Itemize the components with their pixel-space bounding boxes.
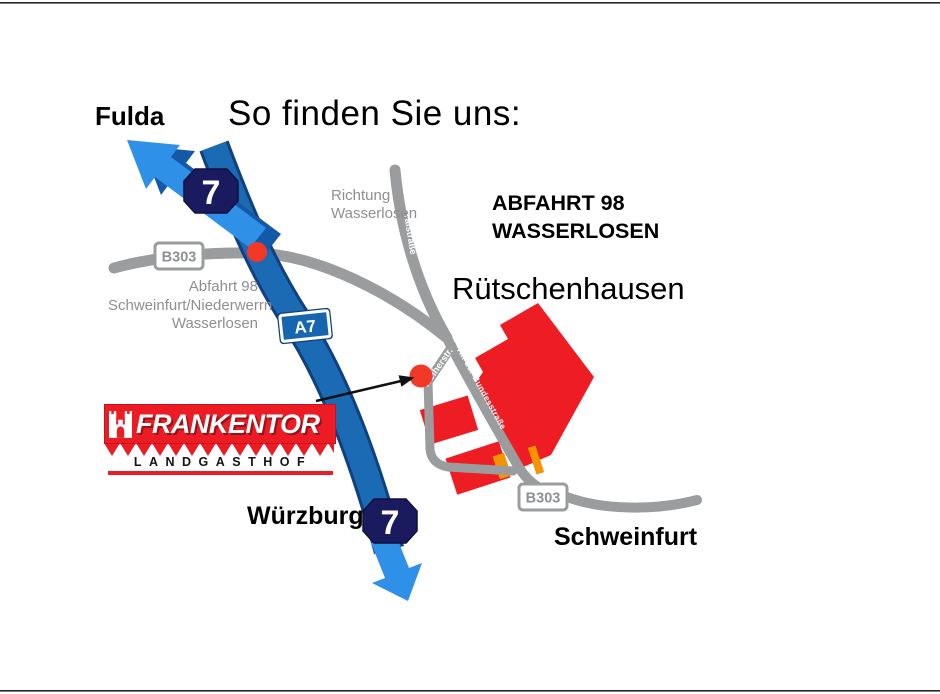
note-richtung-wasserlosen: Richtung Wasserlosen: [331, 187, 417, 223]
autobahn-shield-south-number: 7: [381, 504, 400, 542]
b303-sign-east: B303: [519, 484, 567, 510]
location-marker-dot: [410, 365, 433, 388]
label-fulda: Fulda: [95, 101, 164, 132]
b303-sign-east-label: B303: [526, 491, 561, 507]
note-richtung-line1: Richtung: [331, 187, 417, 205]
frame-line-bottom: [0, 690, 940, 692]
label-schweinfurt: Schweinfurt: [554, 523, 697, 552]
b303-sign-west: B303: [155, 243, 203, 269]
frame-line-top: [0, 2, 940, 4]
village-block-main: [474, 303, 594, 468]
note-exit-east: ABFAHRT 98 WASSERLOSEN: [492, 189, 659, 245]
frankentor-logo: FRANKENTOR LANDGASTHOF: [104, 404, 336, 475]
page-title: So finden Sie uns:: [228, 94, 521, 134]
note-exit-east-line1: ABFAHRT 98: [492, 189, 659, 217]
note-exit-east-line2: WASSERLOSEN: [492, 217, 659, 245]
autobahn-shield-south: 7: [363, 499, 417, 543]
note-exit-west-line2: Schweinfurt/Niederwerrn: [108, 297, 258, 316]
note-exit-west-line3: Wasserlosen: [108, 315, 258, 334]
note-exit-west-line1: Abfahrt 98: [108, 278, 258, 297]
a7-sign-label: A7: [293, 316, 317, 337]
note-exit-west: Abfahrt 98 Schweinfurt/Niederwerrn Wasse…: [108, 278, 258, 334]
map-page: Talstraße An der Bundesstraße Weiherstr.…: [0, 0, 940, 694]
logo-subtitle: LANDGASTHOF: [104, 455, 336, 469]
autobahn-shield-north: 7: [184, 169, 238, 213]
note-richtung-line2: Wasserlosen: [331, 205, 417, 223]
logo-banner: FRANKENTOR: [104, 404, 336, 444]
b303-sign-west-label: B303: [162, 250, 197, 266]
autobahn-shield-north-number: 7: [202, 174, 221, 212]
logo-name: FRANKENTOR: [136, 409, 320, 440]
logo-underline: [108, 471, 333, 475]
castle-gate-icon: [109, 411, 132, 438]
a7-sign: A7: [278, 308, 333, 343]
exit-marker-dot: [247, 242, 267, 262]
label-village: Rütschenhausen: [452, 271, 685, 307]
label-wuerzburg: Würzburg: [247, 502, 364, 531]
